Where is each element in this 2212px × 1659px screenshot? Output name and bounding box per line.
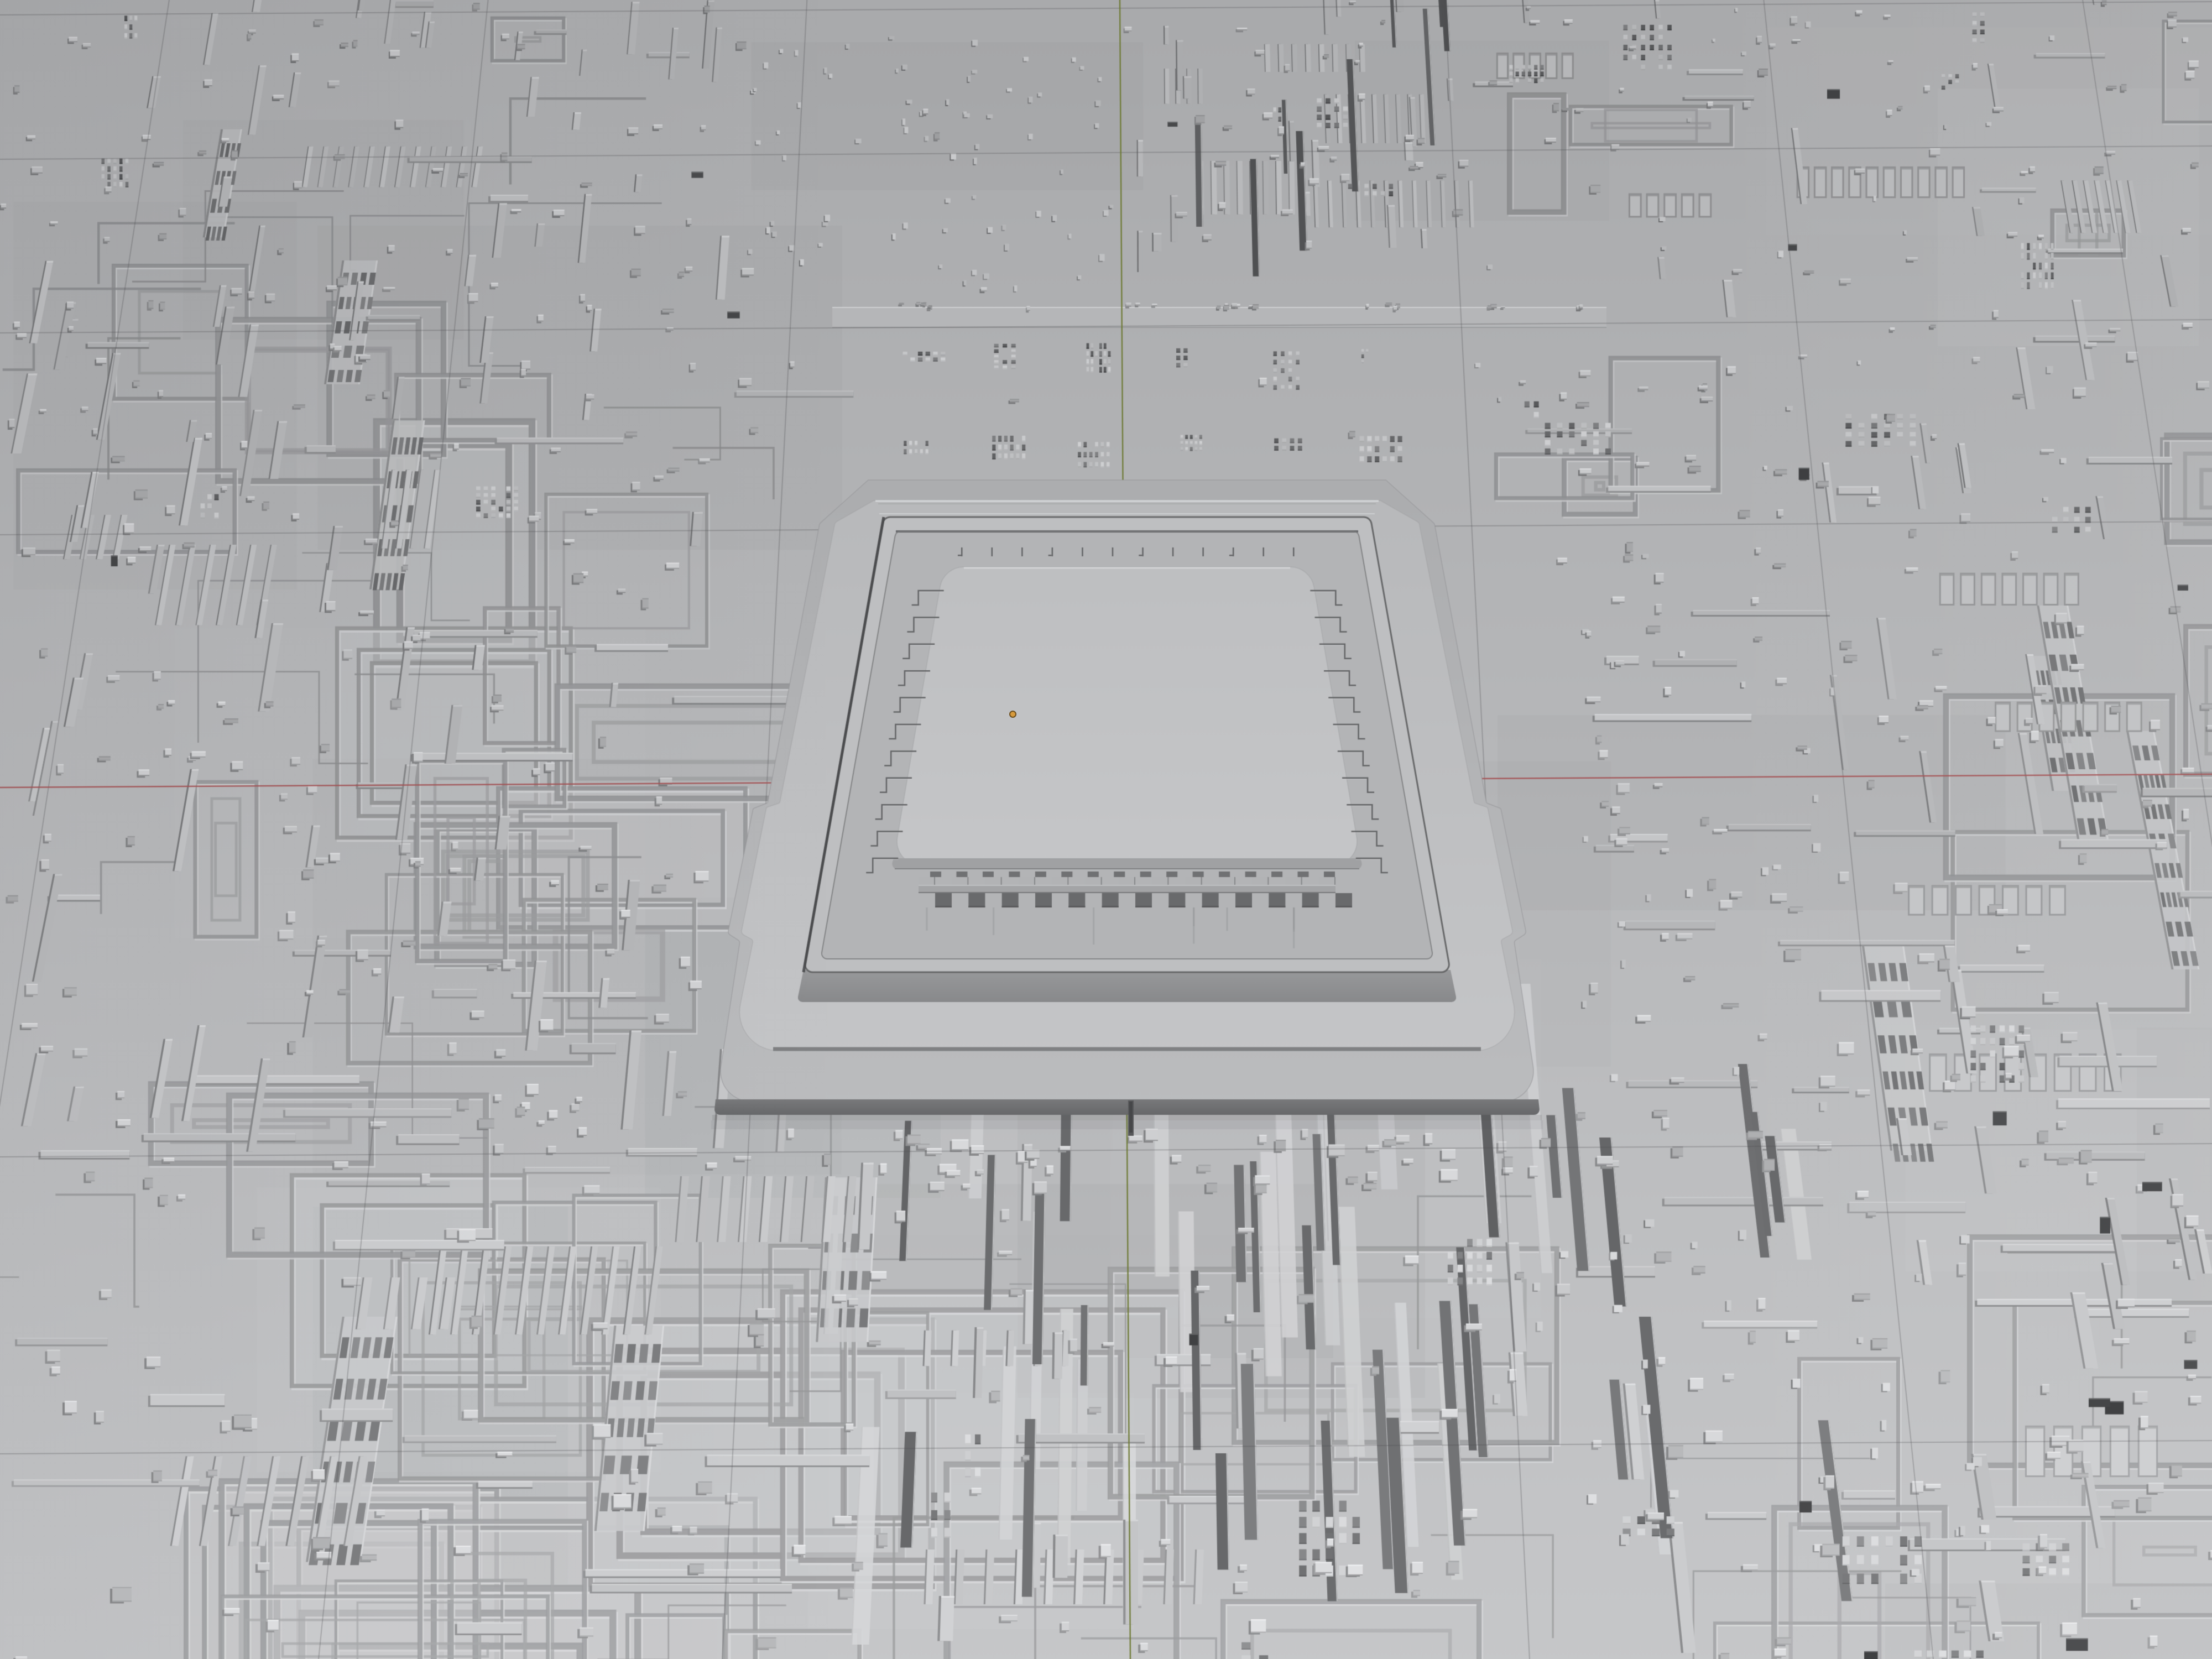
object-origin-dot[interactable] (1009, 711, 1016, 718)
viewport-canvas[interactable] (0, 0, 2212, 1659)
blender-3d-viewport[interactable] (0, 0, 2212, 1659)
